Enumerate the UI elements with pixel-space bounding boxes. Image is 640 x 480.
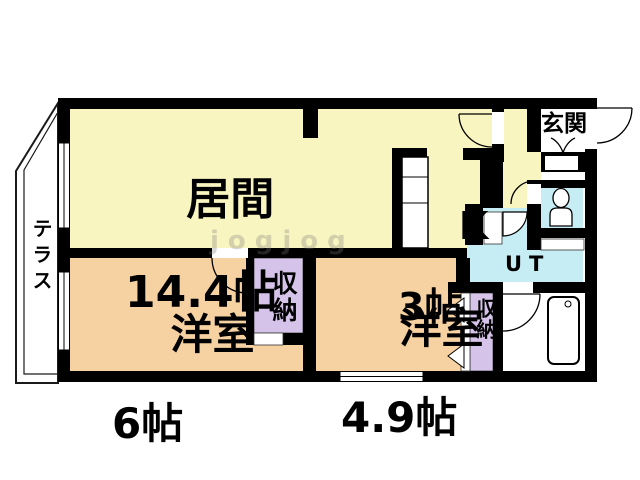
washstand-cabinet xyxy=(541,239,584,250)
bathtub-drain xyxy=(565,301,571,307)
wall-between-bedrooms xyxy=(303,248,316,371)
bedroom-west-name: 洋室 xyxy=(171,310,255,359)
toilet-door-opening xyxy=(527,184,541,204)
toilet-base xyxy=(550,208,572,226)
bedroom-west-size: 6帖 xyxy=(112,402,255,447)
bathtub-outline xyxy=(548,297,579,364)
bedroom-east-label: 洋室 4.9帖 xyxy=(341,262,484,480)
entrance-step-box xyxy=(545,156,578,170)
terrace-label: テラス xyxy=(27,218,56,296)
utility-label: UT xyxy=(505,253,550,275)
wall-kitchen-top-right xyxy=(463,148,504,160)
bedroom-east-size: 4.9帖 xyxy=(341,396,484,441)
hall-floor xyxy=(527,152,541,180)
kitchen-name: K xyxy=(451,204,488,248)
closet-east-label: 収納 xyxy=(471,298,500,340)
toilet-bowl xyxy=(553,189,569,208)
entrance-label: 玄関 xyxy=(541,112,587,136)
entrance-door-swing xyxy=(597,108,632,143)
bathtub-icon xyxy=(548,297,579,364)
wall-toilet-bottom xyxy=(527,228,597,238)
bedroom-west-label: 洋室 6帖 xyxy=(112,268,255,480)
wall-entrance-left xyxy=(527,98,541,152)
living-room-name: 居間 xyxy=(186,174,274,225)
entrance-step-mark xyxy=(551,138,575,153)
watermark: jogjog xyxy=(210,226,355,256)
wall-pier-top xyxy=(303,109,318,138)
bath-door-swing xyxy=(503,294,540,331)
wall-top xyxy=(58,98,597,109)
closet-west-label: 収納 xyxy=(265,270,301,324)
bath-door-opening xyxy=(503,282,533,293)
floorplan-canvas: 居間 14.4帖 K 3帖 洋室 6帖 洋室 4.9帖 玄関 UT テラス 収納… xyxy=(0,0,640,480)
living-door-opening xyxy=(492,112,504,144)
